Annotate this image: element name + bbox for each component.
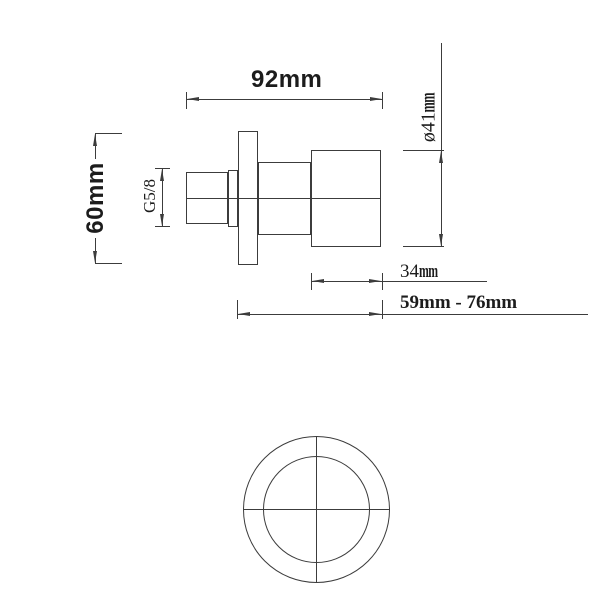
dim-arrow-down-icon [93, 251, 97, 263]
dim-arrow-up-icon [160, 169, 164, 181]
dim-plate-height-label: 60mm [82, 162, 110, 234]
dim-projection-line [237, 314, 588, 315]
dim-tick [382, 273, 383, 290]
dim-handle-depth-line [311, 281, 487, 282]
dim-arrow-right-icon [369, 312, 381, 316]
dim-arrow-right-icon [369, 279, 381, 283]
dim-arrow-up-icon [439, 151, 443, 163]
dim-tick [237, 300, 238, 319]
dim-diameter-line [441, 43, 442, 247]
drawing-canvas: 92mm 60mm G5/8 ø41mm [0, 0, 610, 610]
dim-arrow-right-icon [370, 97, 382, 101]
dim-tick [382, 92, 383, 109]
center-line [186, 198, 381, 199]
dim-unit: mm [418, 93, 441, 112]
crosshair-horizontal-line [243, 509, 390, 510]
dim-arrow-left-icon [312, 279, 324, 283]
dim-value: 34 [400, 261, 419, 282]
dim-arrow-down-icon [160, 214, 164, 226]
dim-handle-depth-label: 34mm [400, 261, 449, 283]
dim-tick [403, 246, 444, 247]
dim-thread-size-label: G5/8 [140, 169, 160, 223]
dim-arrow-down-icon [439, 234, 443, 246]
dim-tick [155, 226, 170, 227]
dim-handle-diameter-label: ø41mm [418, 76, 441, 148]
dim-total-width-line [186, 99, 382, 100]
dim-tick [382, 300, 383, 319]
dim-projection-range-label: 59mm - 76mm [400, 292, 517, 314]
dim-unit: mm [419, 261, 437, 283]
dim-value: ø41 [418, 112, 440, 142]
dim-arrow-left-icon [238, 312, 250, 316]
dim-arrow-left-icon [187, 97, 199, 101]
dim-tick [95, 133, 122, 134]
dim-total-width-label: 92mm [251, 66, 322, 94]
dim-arrow-up-icon [93, 134, 97, 146]
dim-tick [95, 263, 122, 264]
